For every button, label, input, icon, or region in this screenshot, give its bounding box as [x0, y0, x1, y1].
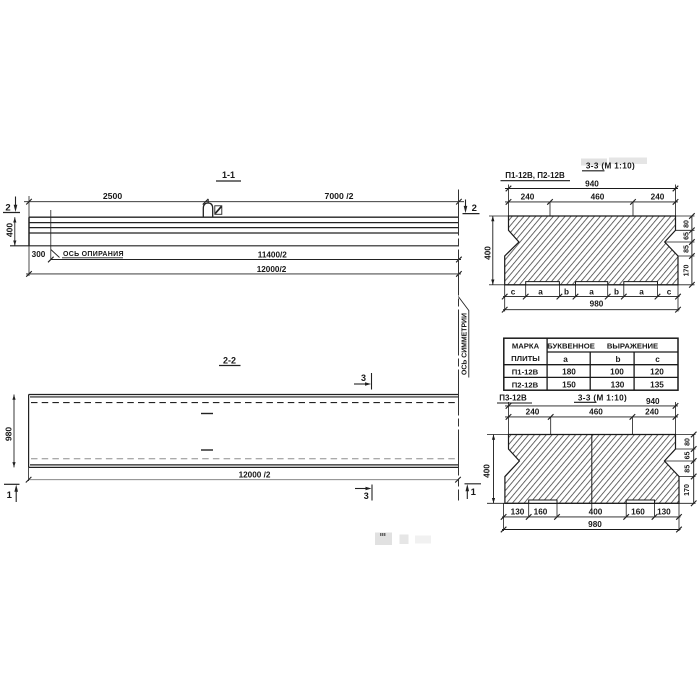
svg-text:11400/2: 11400/2: [258, 251, 288, 260]
svg-text:300: 300: [32, 250, 46, 259]
svg-text:ОСЬ СИММЕТРИИ: ОСЬ СИММЕТРИИ: [461, 313, 468, 375]
svg-text:400: 400: [484, 246, 493, 260]
svg-text:135: 135: [650, 380, 664, 389]
svg-text:3-3 (М 1:10): 3-3 (М 1:10): [586, 162, 635, 171]
svg-text:2500: 2500: [103, 191, 122, 201]
svg-text:940: 940: [646, 397, 660, 406]
svg-text:180: 180: [562, 368, 576, 377]
svg-text:1: 1: [7, 490, 13, 501]
svg-text:400: 400: [483, 464, 492, 478]
svg-text:170: 170: [684, 484, 691, 496]
svg-text:460: 460: [589, 408, 603, 417]
svg-text:12000/2: 12000/2: [257, 265, 287, 274]
svg-text:170: 170: [684, 265, 691, 277]
svg-text:a: a: [538, 288, 543, 297]
svg-text:240: 240: [521, 193, 535, 202]
svg-text:b: b: [615, 355, 620, 364]
svg-text:160: 160: [534, 508, 548, 517]
svg-text:a: a: [589, 288, 594, 297]
svg-text:65: 65: [685, 452, 692, 460]
svg-text:c: c: [667, 288, 672, 297]
svg-text:240: 240: [651, 193, 665, 202]
svg-text:П1-12В, П2-12В: П1-12В, П2-12В: [505, 171, 565, 180]
svg-text:130: 130: [511, 508, 525, 517]
svg-text:П1-12В: П1-12В: [512, 368, 539, 377]
svg-text:ПЛИТЫ: ПЛИТЫ: [511, 354, 540, 363]
svg-text:65: 65: [684, 232, 691, 240]
svg-text:130: 130: [611, 380, 625, 389]
svg-text:3-3 (М 1:10): 3-3 (М 1:10): [578, 394, 627, 403]
svg-text:980: 980: [588, 520, 602, 529]
svg-text:12000 /2: 12000 /2: [239, 470, 271, 479]
svg-text:240: 240: [526, 408, 540, 417]
svg-text:2-2: 2-2: [223, 356, 236, 366]
svg-text:МАРКА: МАРКА: [512, 342, 540, 351]
svg-text:100: 100: [610, 368, 624, 377]
svg-text:2: 2: [472, 203, 477, 214]
svg-text:3: 3: [361, 373, 366, 383]
svg-text:130: 130: [657, 508, 671, 517]
svg-text:2: 2: [5, 203, 10, 214]
svg-text:БУКВЕННОЕ: БУКВЕННОЕ: [547, 342, 595, 351]
svg-text:400: 400: [589, 508, 603, 517]
svg-text:b: b: [614, 288, 619, 297]
svg-text:980: 980: [4, 427, 14, 442]
svg-text:3: 3: [364, 491, 369, 501]
svg-text:980: 980: [590, 300, 604, 309]
svg-text:П3-12В: П3-12В: [499, 394, 527, 403]
svg-text:80: 80: [684, 220, 691, 228]
svg-text:940: 940: [585, 180, 599, 189]
svg-text:85: 85: [685, 465, 692, 473]
svg-text:460: 460: [591, 193, 605, 202]
svg-text:c: c: [511, 288, 516, 297]
svg-text:240: 240: [645, 408, 659, 417]
svg-text:120: 120: [650, 368, 664, 377]
svg-text:c: c: [655, 355, 660, 364]
svg-text:a: a: [639, 288, 644, 297]
svg-text:П2-12В: П2-12В: [512, 380, 539, 389]
svg-text:1-1: 1-1: [222, 170, 235, 180]
svg-text:ВЫРАЖЕНИЕ: ВЫРАЖЕНИЕ: [607, 342, 658, 351]
svg-text:160: 160: [631, 508, 645, 517]
svg-text:1: 1: [471, 487, 477, 498]
svg-text:b: b: [564, 288, 569, 297]
svg-text:85: 85: [684, 245, 691, 253]
svg-text:7000 /2: 7000 /2: [325, 191, 354, 201]
svg-text:ОСЬ ОПИРАНИЯ: ОСЬ ОПИРАНИЯ: [63, 251, 124, 258]
svg-text:80: 80: [685, 438, 692, 446]
svg-text:400: 400: [4, 223, 14, 238]
svg-text:150: 150: [562, 380, 576, 389]
svg-text:a: a: [563, 355, 568, 364]
